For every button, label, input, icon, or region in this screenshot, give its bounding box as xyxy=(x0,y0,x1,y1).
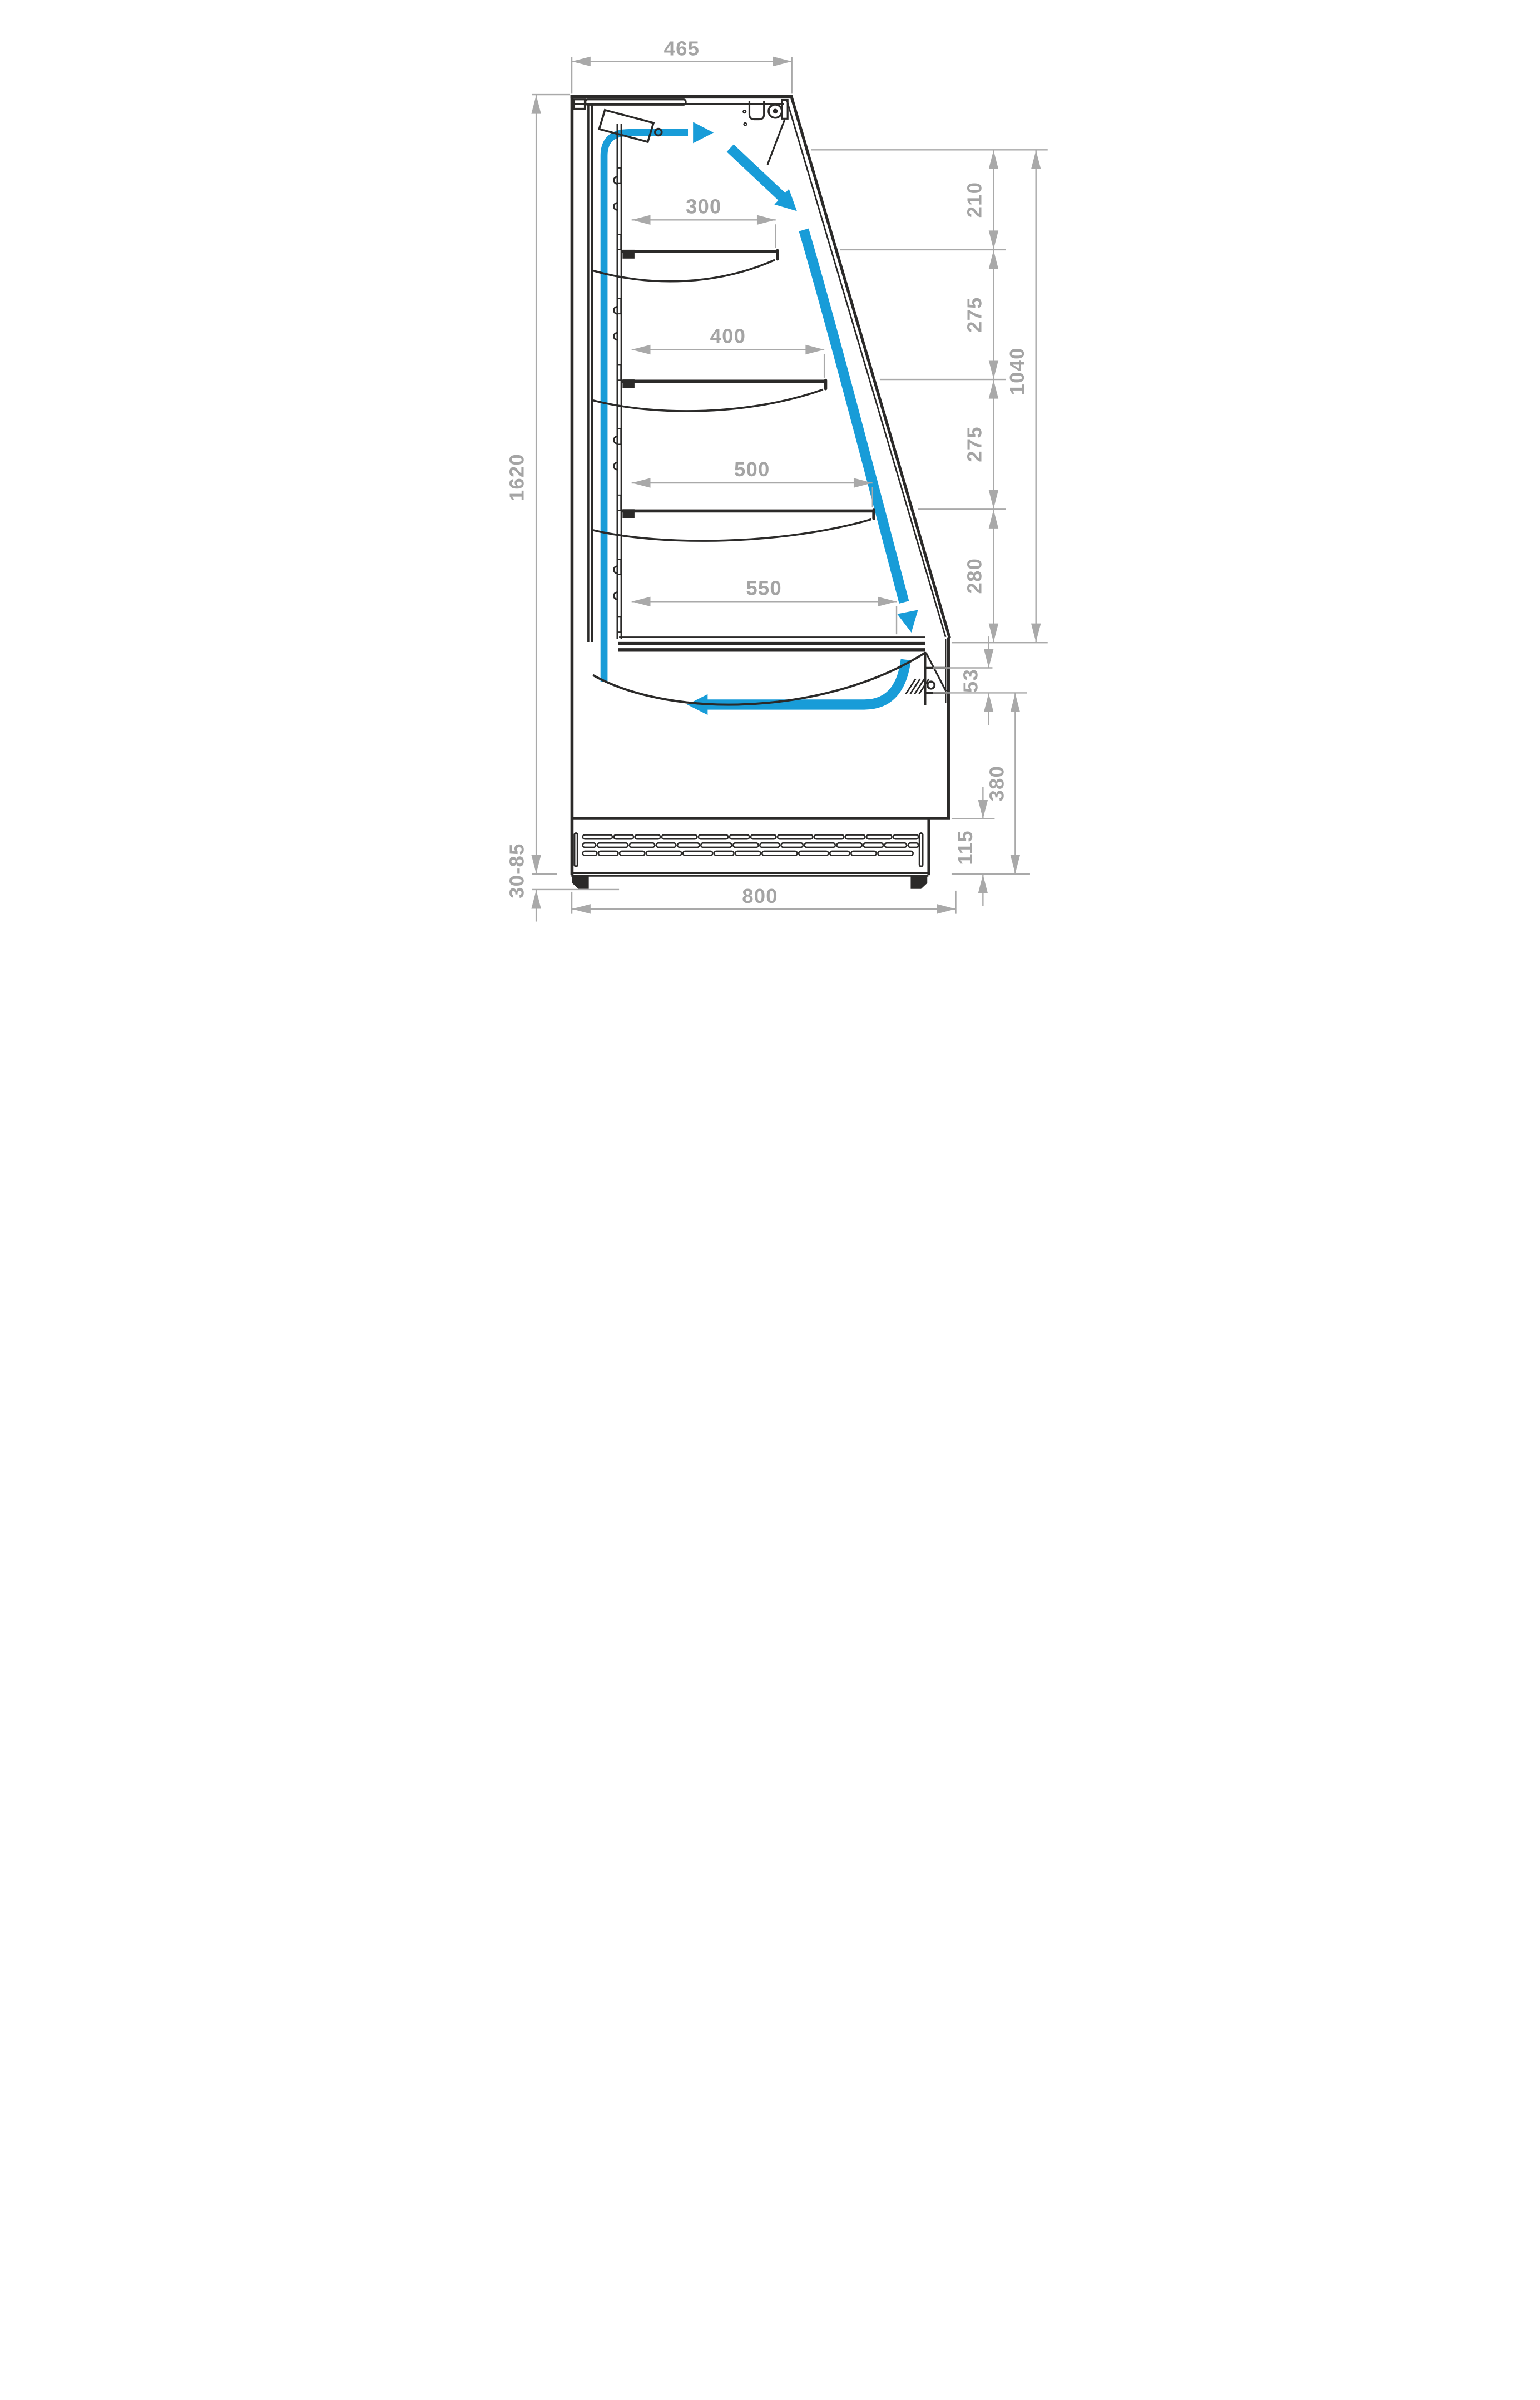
arrow-icon xyxy=(988,361,998,379)
display-case-section-drawing: 465 1620 30-85 800 xyxy=(464,0,1076,954)
dim-label-vent: 115 xyxy=(953,830,976,865)
arrow-icon xyxy=(531,890,541,909)
slot xyxy=(617,429,621,445)
fan-hub xyxy=(773,108,778,113)
sill-strut xyxy=(926,653,946,692)
arrow-icon xyxy=(756,215,775,225)
arrow-icon xyxy=(878,597,897,606)
shelf-undercurve xyxy=(593,260,775,282)
arrow-icon xyxy=(631,478,650,487)
light-fixture xyxy=(585,100,685,105)
slot xyxy=(617,298,621,314)
dim-label-feet-adjust: 30-85 xyxy=(505,843,528,898)
dim-label-spacing-2: 275 xyxy=(963,297,986,333)
shelf-undercurve xyxy=(593,520,871,541)
dim-label-front-opening: 1040 xyxy=(1006,347,1028,395)
sill-bolt xyxy=(927,682,934,689)
slot xyxy=(617,559,621,575)
vent-end-slot-left xyxy=(574,833,577,867)
arrow-icon xyxy=(988,510,998,529)
arrow-icon xyxy=(1031,150,1040,169)
support-strut xyxy=(767,120,785,165)
front-glass-outer xyxy=(791,95,949,638)
dim-label-spacing-4: 280 xyxy=(963,558,986,594)
arrow-icon xyxy=(988,490,998,509)
duct-panel-slots xyxy=(617,168,621,632)
dim-label-spacing-1: 210 xyxy=(963,182,986,218)
foot-right xyxy=(910,876,927,888)
foot-left xyxy=(572,876,588,888)
arrow-icon xyxy=(988,250,998,269)
slot xyxy=(617,495,621,511)
slot xyxy=(617,364,621,380)
arrow-icon xyxy=(988,150,998,169)
hatch-line xyxy=(910,679,919,694)
slot xyxy=(617,168,621,184)
arrow-icon xyxy=(531,95,541,114)
dim-label-shelf-4: 550 xyxy=(746,576,782,599)
slot xyxy=(617,616,621,632)
arrow-icon xyxy=(983,649,993,668)
panel-hole xyxy=(744,123,746,126)
arrow-icon xyxy=(631,345,650,354)
airflow-top-arrow-icon xyxy=(693,122,714,143)
dim-label-base-depth: 800 xyxy=(742,885,778,907)
airflow xyxy=(604,122,918,715)
dim-label-overall-height: 1620 xyxy=(505,453,528,501)
arrow-icon xyxy=(773,57,791,66)
arrow-icon xyxy=(572,57,591,66)
airflow-curtain-band xyxy=(804,230,904,602)
dim-label-shelf-1: 300 xyxy=(685,195,721,218)
dim-label-top-depth: 465 xyxy=(663,37,700,60)
dim-label-spacing-3: 275 xyxy=(963,426,986,462)
arrow-icon xyxy=(1010,855,1019,874)
slot xyxy=(617,234,621,250)
dim-label-sill: 53 xyxy=(959,669,982,693)
arrow-icon xyxy=(978,800,987,819)
arrow-icon xyxy=(1031,624,1040,643)
shelves xyxy=(593,250,874,541)
arrow-icon xyxy=(988,380,998,399)
vent-grille xyxy=(574,833,922,867)
arrow-icon xyxy=(805,345,824,354)
panel-hole xyxy=(743,110,746,113)
arrow-icon xyxy=(572,904,591,913)
arrow-icon xyxy=(988,624,998,643)
dim-label-shelf-3: 500 xyxy=(734,458,770,481)
hatch-line xyxy=(905,679,915,694)
vent-end-slot-right xyxy=(919,833,923,867)
drawing-stage: 465 1620 30-85 800 xyxy=(464,0,1076,954)
arrow-icon xyxy=(1010,693,1019,712)
hatch-line xyxy=(914,679,924,694)
arrow-icon xyxy=(531,855,541,874)
dim-label-shelf-2: 400 xyxy=(710,325,746,348)
shelf-undercurve xyxy=(593,389,823,411)
arrow-icon xyxy=(983,693,993,712)
arrow-icon xyxy=(988,230,998,249)
dim-label-base-section: 380 xyxy=(985,766,1008,802)
front-glass-inner xyxy=(786,100,945,637)
arrow-icon xyxy=(937,904,955,913)
fan-bracket xyxy=(781,100,787,119)
arrow-icon xyxy=(978,875,987,893)
arrow-icon xyxy=(631,215,650,225)
arrow-icon xyxy=(631,597,650,606)
airflow-curtain-arrow-icon xyxy=(897,610,918,633)
airflow-discharge-band xyxy=(730,148,782,197)
case-structure xyxy=(570,95,949,889)
dimension-annotations: 465 1620 30-85 800 xyxy=(505,37,1047,921)
base-duct-curve xyxy=(593,653,924,705)
